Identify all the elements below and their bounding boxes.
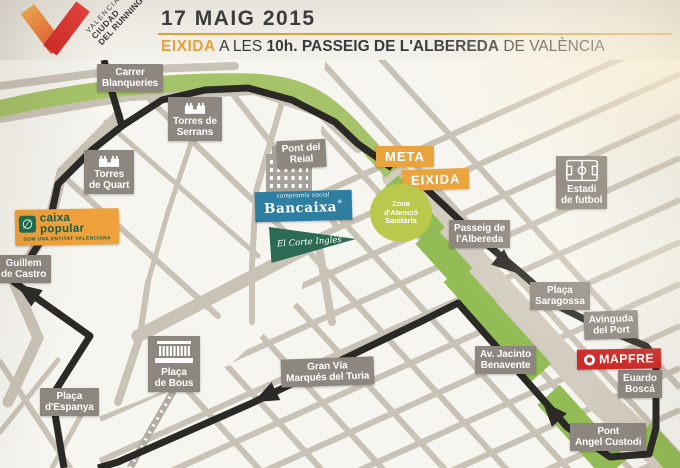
header: VALENCIA CIUDAD DEL RUNNING 17 MAIG 2015… bbox=[0, 0, 680, 60]
mapfre-emblem-icon bbox=[584, 354, 595, 365]
badge-guillem-de-castro: Guillem de Castro bbox=[0, 255, 51, 283]
badge-carrer-blanqueries: Carrer Blanqueries bbox=[97, 64, 163, 92]
caixa-popular-wordmark: caixa popular bbox=[40, 213, 85, 235]
castle-tower-icon bbox=[98, 153, 120, 167]
badge-label: Torres de Quart bbox=[89, 169, 129, 191]
castle-tower-icon bbox=[184, 100, 206, 114]
badge-av-jacinto-benavente: Av. Jacinto Benavente bbox=[475, 346, 536, 374]
finish-line-tag: META bbox=[376, 146, 434, 167]
badge-torres-serrans: Torres de Serrans bbox=[168, 97, 222, 141]
badge-placa-espanya: Plaça d'Espanya bbox=[40, 388, 99, 416]
badge-gran-via-marques-turia: Gran Vía Marqués del Turia bbox=[281, 356, 375, 388]
badge-pont-del-reial: Pont del Reial bbox=[276, 139, 326, 170]
event-date: 17 MAIG 2015 bbox=[161, 7, 316, 31]
badge-pont-angel-custodi: Pont Angel Custodi bbox=[570, 423, 646, 451]
caixa-word-2: popular bbox=[40, 222, 84, 235]
football-pitch-icon bbox=[565, 159, 599, 182]
badge-label: Torres de Serrans bbox=[173, 116, 217, 138]
city-map-canvas bbox=[0, 60, 680, 468]
badge-placa-saragossa: Plaça Saragossa bbox=[530, 282, 590, 310]
subtitle-ales: A LES bbox=[216, 38, 267, 55]
caixa-popular-logo: ∅ caixa popular SOM UNA ENTITAT VALENCIA… bbox=[15, 208, 120, 245]
badge-avinguda-del-port: Avinguda del Port bbox=[584, 310, 639, 340]
bancaixa-star-icon: ✳ bbox=[337, 199, 343, 206]
badge-passeig-albereda: Passeig de l'Albereda bbox=[449, 220, 510, 248]
mapfre-wordmark: MAPFRE bbox=[599, 351, 654, 366]
logo-wordmark: VALENCIA CIUDAD DEL RUNNING bbox=[85, 0, 145, 47]
caixa-popular-emblem-icon: ∅ bbox=[19, 216, 36, 233]
valencia-running-logo: VALENCIA CIUDAD DEL RUNNING bbox=[10, 0, 160, 58]
race-map-photo: VALENCIA CIUDAD DEL RUNNING 17 MAIG 2015… bbox=[0, 0, 680, 468]
bancaixa-wordmark: Bancaixa bbox=[264, 199, 337, 217]
mapfre-logo: MAPFRE bbox=[577, 348, 662, 369]
badge-euardo-bosca: Euardo Boscá bbox=[618, 370, 662, 398]
subtitle-eixida: EIXIDA bbox=[161, 38, 216, 55]
badge-estadi-de-futbol: Estadi de futbol bbox=[556, 156, 607, 209]
badge-label: Plaça de Bous bbox=[155, 367, 194, 389]
badge-label: Estadi de futbol bbox=[561, 184, 602, 206]
gold-divider bbox=[158, 33, 672, 35]
badge-torres-quart: Torres de Quart bbox=[84, 150, 134, 194]
badge-placa-de-bous: Plaça de Bous bbox=[148, 336, 200, 392]
bullring-icon bbox=[153, 339, 195, 365]
caixa-popular-tagline: SOM UNA ENTITAT VALENCIANA bbox=[19, 236, 115, 243]
subtitle-place: 10h. PASSEIG DE L'ALBEREDA bbox=[267, 38, 500, 55]
subtitle-city: DE VALÈNCIA bbox=[499, 38, 605, 55]
event-subtitle: EIXIDA A LES 10h. PASSEIG DE L'ALBEREDA … bbox=[161, 38, 605, 56]
bancaixa-logo: compromís social Bancaixa✳ bbox=[255, 190, 353, 223]
medical-zone-circle: Zona d'Atenció Sanitària bbox=[370, 184, 432, 242]
